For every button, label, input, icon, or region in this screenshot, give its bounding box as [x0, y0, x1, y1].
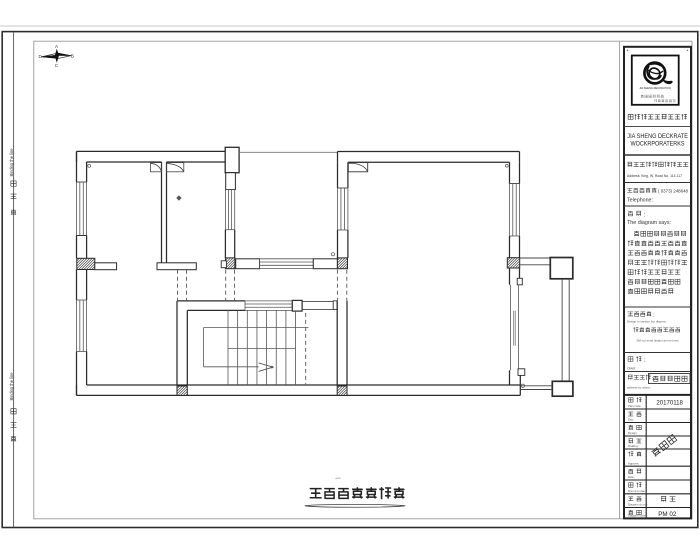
svg-text:( 0373) 248648: ( 0373) 248648 — [658, 189, 688, 195]
svg-text:Telephone:: Telephone: — [627, 198, 653, 204]
svg-text:Design:: Design: — [628, 431, 638, 435]
svg-text:Drafting:: Drafting: — [628, 444, 639, 448]
svg-text:Plan code:: Plan code: — [628, 404, 641, 408]
svg-text:JIA SHENG DECKRATE: JIA SHENG DECKRATE — [627, 133, 688, 140]
svg-text:Own:: Own: — [627, 366, 636, 371]
svg-text:Dra na to dae:: Dra na to dae: — [628, 489, 646, 493]
svg-text:Address: King, W. Road No. 114: Address: King, W. Road No. 114-117 — [627, 174, 682, 178]
svg-text:B: B — [71, 54, 74, 59]
svg-text:Diagram codes:: Diagram codes: — [628, 514, 648, 518]
svg-text:Binding the line: Binding the line — [9, 148, 14, 177]
svg-text:Binding the line: Binding the line — [9, 372, 14, 401]
svg-text:Dep:: Dep: — [628, 418, 634, 422]
svg-text:Design in version the dispers:: Design in version the dispers: — [627, 320, 667, 324]
svg-text:WOCKRPORATERKS: WOCKRPORATERKS — [631, 141, 685, 148]
svg-text:Date:: Date: — [628, 475, 635, 479]
svg-text:Diagram do not:: Diagram do not: — [628, 503, 648, 507]
svg-text:address by alone:: address by alone: — [627, 386, 651, 390]
svg-text:The diagram says:: The diagram says: — [627, 220, 671, 226]
svg-text:PM 02: PM 02 — [658, 511, 677, 518]
svg-text:20170118: 20170118 — [656, 400, 683, 407]
svg-text:Stif not send displut ant en: Stif not send displut ant ent rest — [636, 339, 678, 343]
svg-text:JIA SHENG DECORATION: JIA SHENG DECORATION — [639, 86, 670, 90]
svg-text:Approve:: Approve: — [628, 461, 639, 465]
